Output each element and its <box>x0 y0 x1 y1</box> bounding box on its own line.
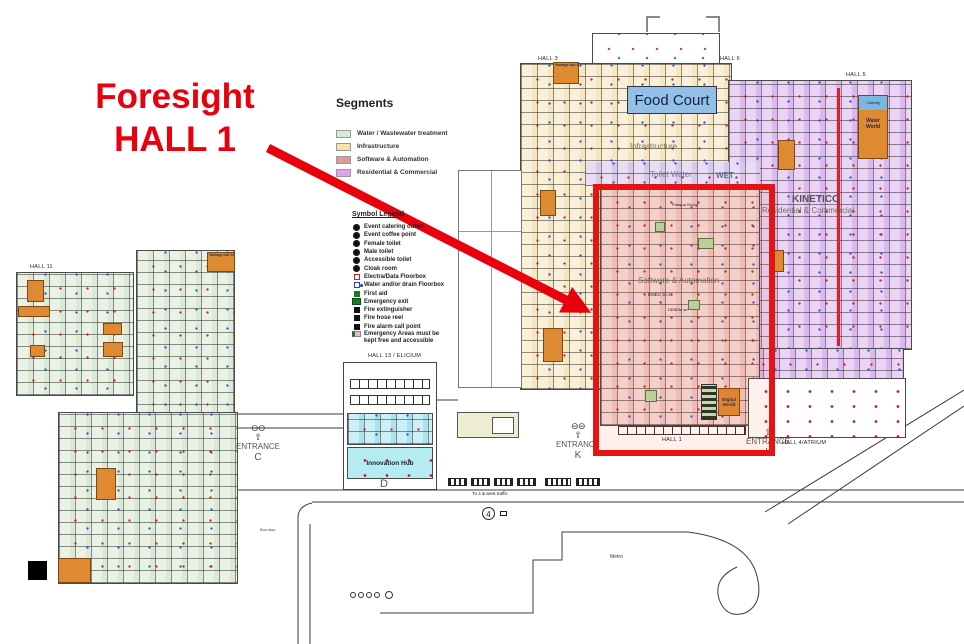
accessible-toilet-icon <box>352 257 361 264</box>
legend-label: Software & Automation <box>357 156 429 163</box>
wet-label: WET <box>716 171 734 180</box>
foresight-annotation: Foresight HALL 1 <box>52 76 298 161</box>
legend-label: Water / Wastewater treatment <box>357 130 448 137</box>
inner-box <box>492 417 514 434</box>
fire-hose-icon <box>352 315 361 321</box>
water-floorbox-icon <box>352 282 361 288</box>
symbol-row: Event catering outlet <box>352 223 452 231</box>
symbol-label: First aid <box>364 291 387 297</box>
catering-point-icon <box>352 224 361 231</box>
orange-booth <box>18 306 50 317</box>
symbol-row: Fire alarm call point <box>352 323 452 331</box>
annotation-line2: HALL 1 <box>52 119 298 162</box>
symbol-label: Electra/Data Floorbox <box>364 274 426 280</box>
symbol-row: Female toilet <box>352 240 452 248</box>
symbol-label: Male toilet <box>364 249 393 255</box>
vantage-hall-3-label: Vantage hall 3 <box>555 64 579 68</box>
inner-wall <box>491 171 492 387</box>
route-4-sign: 4 <box>482 507 495 520</box>
black-marker-square <box>28 561 47 580</box>
vantage-hall-10-box: Vantage hall 10 <box>207 252 235 272</box>
segments-legend-title: Segments <box>336 96 476 110</box>
symbol-label: Fire alarm call point <box>364 324 421 330</box>
metro-label: Metro <box>610 555 623 561</box>
orange-booth <box>27 280 44 302</box>
hall-3-label: HALL 3 <box>538 56 558 62</box>
orange-booth <box>30 345 45 357</box>
symbol-row: Male toilet <box>352 248 452 256</box>
kinetico-label: KINETICO <box>792 194 840 205</box>
vantage-hall-3-box: Vantage hall 3 <box>553 62 579 84</box>
legend-row: Software & Automation <box>336 153 476 166</box>
innovation-booths <box>347 413 433 445</box>
emergency-exit-icon <box>352 298 361 305</box>
bus-stop-label: Bus stop <box>260 528 276 532</box>
symbol-row: Accessible toilet <box>352 256 452 264</box>
innovation-hub-label: Innovation Hub <box>366 460 413 467</box>
coffee-point-icon <box>352 232 361 239</box>
orange-booth <box>58 558 91 583</box>
food-court-label: Food Court <box>634 92 709 109</box>
venue-floor-plan: Innovation Hub Food Court Vantage hall 3… <box>0 0 964 644</box>
swatch-infrastructure <box>336 143 351 151</box>
route-4-box <box>500 511 507 516</box>
center-building <box>458 170 522 388</box>
hall-5-label: HALL 5 <box>846 72 866 78</box>
symbol-label: Accessible toilet <box>364 257 411 263</box>
symbol-row: Electra/Data Floorbox <box>352 273 452 281</box>
kiosk-box <box>448 478 467 486</box>
infrastructure-watermark: Infrastructure <box>630 142 677 151</box>
swatch-residential <box>336 169 351 177</box>
legend-row: Infrastructure <box>336 140 476 153</box>
swatch-water <box>336 130 351 138</box>
canopy-mark <box>646 16 660 32</box>
symbol-label: Emergency Areas must be kept free and ac… <box>364 331 446 345</box>
hall-13-building: Innovation Hub <box>343 362 437 490</box>
entrance-c: ⊖⊖ ⇧ ENTRANCE C <box>232 424 284 464</box>
booth-row <box>350 379 430 389</box>
symbol-legend: Symbol Legend Event catering outlet Even… <box>352 211 452 346</box>
symbol-row: Emergency exit <box>352 298 452 306</box>
d-road-label: D <box>380 478 388 490</box>
annotation-line1: Foresight <box>52 76 298 119</box>
symbol-label: Fire hose reel <box>364 315 403 321</box>
symbol-row: Cloak room <box>352 264 452 272</box>
symbol-label: Event catering outlet <box>364 224 423 230</box>
symbol-legend-title: Symbol Legend <box>352 211 452 218</box>
swatch-software <box>336 156 351 164</box>
emergency-area-icon <box>352 331 361 337</box>
symbol-row: Emergency Areas must be kept free and ac… <box>352 331 452 346</box>
symbol-row: First aid <box>352 289 452 297</box>
entrance-arrow-icon: ⇧ <box>232 433 284 442</box>
legend-label: Infrastructure <box>357 143 399 150</box>
orange-booth <box>778 140 795 170</box>
kiosk-box <box>517 478 536 486</box>
fire-lane-line <box>837 88 840 346</box>
symbol-label: Fire extinguisher <box>364 307 412 313</box>
parking-circles <box>350 591 393 599</box>
symbol-row: Water and/or drain Floorbox <box>352 281 452 289</box>
symbol-label: Water and/or drain Floorbox <box>364 282 444 288</box>
symbol-label: Event coffee point <box>364 232 416 238</box>
symbol-label: Female toilet <box>364 241 401 247</box>
booth-row <box>350 395 430 405</box>
entrance-c-letter: C <box>232 452 284 464</box>
canopy-mark <box>706 16 720 32</box>
male-toilet-icon <box>352 249 361 256</box>
innovation-hub-area: Innovation Hub <box>347 447 433 479</box>
orange-booth <box>103 342 123 357</box>
water-world-box: Catering Water World <box>858 95 888 159</box>
inner-wall <box>459 231 521 232</box>
hall-11-label: HALL 11 <box>30 264 53 270</box>
female-toilet-icon <box>352 240 361 247</box>
orange-booth <box>543 328 563 362</box>
cloak-room-icon <box>352 265 361 272</box>
orange-booth <box>540 190 556 216</box>
kiosk-box <box>576 478 600 486</box>
symbol-label: Cloak room <box>364 266 397 272</box>
entrance-c-label: ENTRANCE <box>232 442 284 452</box>
symbol-row: Fire extinguisher <box>352 306 452 314</box>
orange-booth <box>96 468 116 500</box>
legend-row: Residential & Commercial <box>336 166 476 179</box>
vantage-hall-10-label: Vantage hall 10 <box>209 254 235 258</box>
symbol-label: Emergency exit <box>364 299 408 305</box>
fire-alarm-icon <box>352 324 361 330</box>
service-box <box>457 412 519 438</box>
legend-label: Residential & Commercial <box>357 169 437 176</box>
symbol-row: Fire hose reel <box>352 314 452 322</box>
route-number: 4 <box>486 510 490 519</box>
water-world-label: Water World <box>859 110 887 130</box>
legend-row: Water / Wastewater treatment <box>336 127 476 140</box>
catering-strip: Catering <box>859 96 887 110</box>
toilet-water-watermark: Toilet Water <box>650 170 692 179</box>
residential-commercial-watermark: Residential & Commercial <box>762 206 854 215</box>
hall-13-label: HALL 13 / ELICIUM <box>368 353 421 359</box>
segments-legend: Segments Water / Wastewater treatment In… <box>336 96 476 179</box>
kiosk-box <box>545 478 571 486</box>
fire-extinguisher-icon <box>352 307 361 313</box>
traffic-note: To 4 & west traffic <box>448 492 532 497</box>
kiosk-box <box>471 478 490 486</box>
kiosk-box <box>494 478 513 486</box>
first-aid-icon <box>352 291 361 297</box>
catering-label: Catering <box>866 101 879 105</box>
food-court: Food Court <box>627 86 717 114</box>
electra-floorbox-icon <box>352 274 361 280</box>
hall-6-label: HALL 6 <box>720 56 740 62</box>
hall-1-highlight-rect <box>593 184 775 456</box>
symbol-row: Event coffee point <box>352 231 452 239</box>
orange-booth <box>103 323 122 335</box>
hall-11-east-building <box>136 250 235 418</box>
